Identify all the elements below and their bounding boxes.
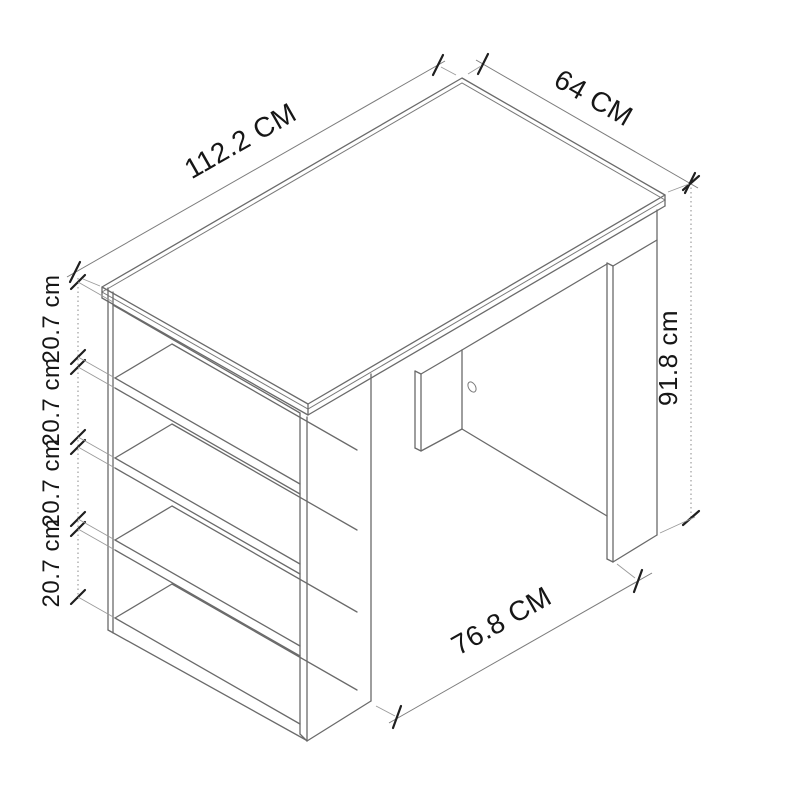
dimension-length-label: 112.2 CM — [179, 97, 301, 185]
right-leg-panel — [607, 210, 657, 562]
shelf-gap-label-2: 20.7 cm — [38, 358, 65, 447]
shelf-3 — [115, 506, 357, 656]
shelf-1 — [115, 344, 357, 494]
dimension-depth: 64 CM — [468, 54, 698, 193]
partition-panel — [300, 374, 371, 741]
tabletop-top-face — [102, 78, 665, 404]
shelf-2 — [115, 424, 357, 574]
dimension-height-label: 91.8 cm — [653, 310, 683, 406]
dimension-shelf-gaps: 20.7 cm 20.7 cm 20.7 cm 20.7 cm — [38, 275, 115, 618]
shelf-gap-label-4: 20.7 cm — [38, 519, 65, 608]
floor-line — [462, 429, 607, 516]
shelf-unit — [108, 288, 371, 741]
dimension-clearance: 76.8 CM — [376, 564, 652, 728]
dimension-drawing-page: 112.2 CM 64 CM 91.8 cm 76.8 CM — [0, 0, 800, 800]
dimension-depth-label: 64 CM — [549, 63, 638, 132]
bar-table-drawing — [102, 78, 665, 741]
bar-table-technical-drawing: 112.2 CM 64 CM 91.8 cm 76.8 CM — [0, 0, 800, 800]
dimension-clearance-label: 76.8 CM — [446, 580, 556, 661]
shelf-unit-top-board-edge — [113, 305, 300, 413]
dimension-height: 91.8 cm — [653, 176, 699, 533]
shelf-gap-label-1: 20.7 cm — [38, 275, 65, 364]
cam-lock-hole-icon — [466, 380, 478, 393]
shelf-gap-label-3: 20.7 cm — [38, 439, 65, 528]
support-panel — [415, 350, 478, 451]
dimension-length: 112.2 CM — [67, 55, 456, 286]
tabletop — [102, 78, 665, 415]
